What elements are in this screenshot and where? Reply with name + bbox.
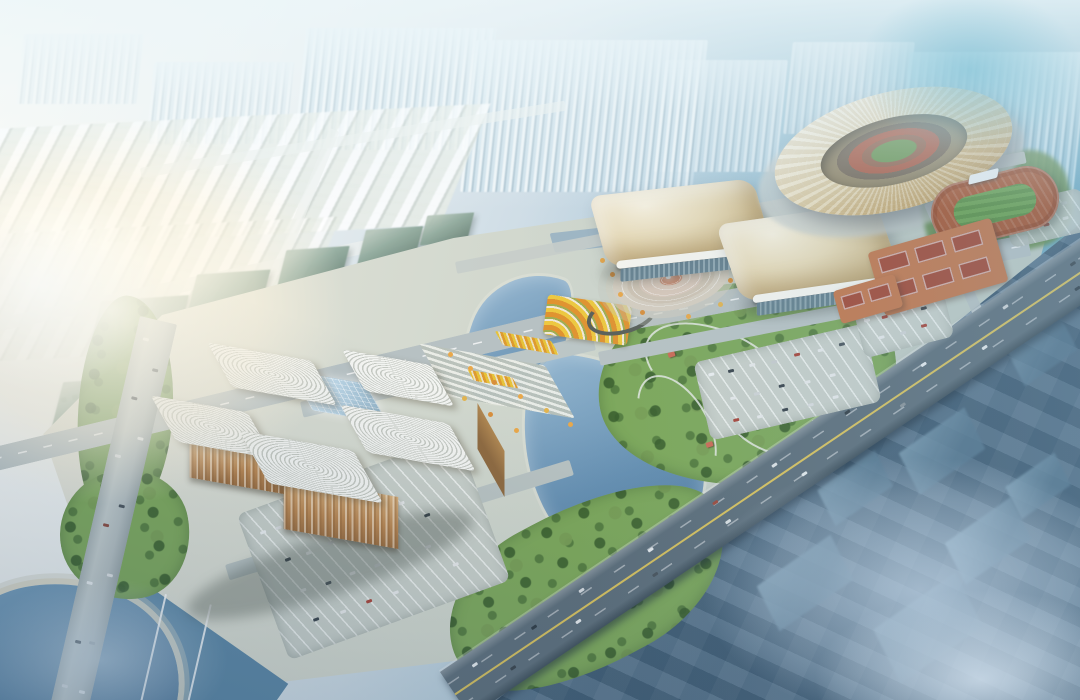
court bbox=[950, 229, 983, 253]
parked-cars bbox=[708, 372, 715, 376]
traffic-dots bbox=[472, 662, 479, 668]
city-towers-far-left bbox=[16, 34, 143, 104]
parked-cars bbox=[260, 530, 267, 535]
parked-cars bbox=[864, 318, 871, 322]
autumn-tree-dots bbox=[448, 352, 453, 357]
court bbox=[958, 256, 991, 280]
city-towers-midright bbox=[654, 60, 788, 172]
autumn-tree-dots bbox=[600, 258, 605, 263]
court bbox=[877, 250, 910, 274]
traffic-dots bbox=[152, 368, 159, 372]
court bbox=[914, 240, 947, 264]
traffic-dots bbox=[510, 665, 517, 671]
track-infield bbox=[950, 180, 1039, 231]
aerial-rendering bbox=[0, 0, 1080, 700]
court bbox=[922, 267, 955, 291]
traffic-dots bbox=[143, 337, 150, 341]
court bbox=[867, 283, 892, 303]
court bbox=[840, 290, 865, 310]
